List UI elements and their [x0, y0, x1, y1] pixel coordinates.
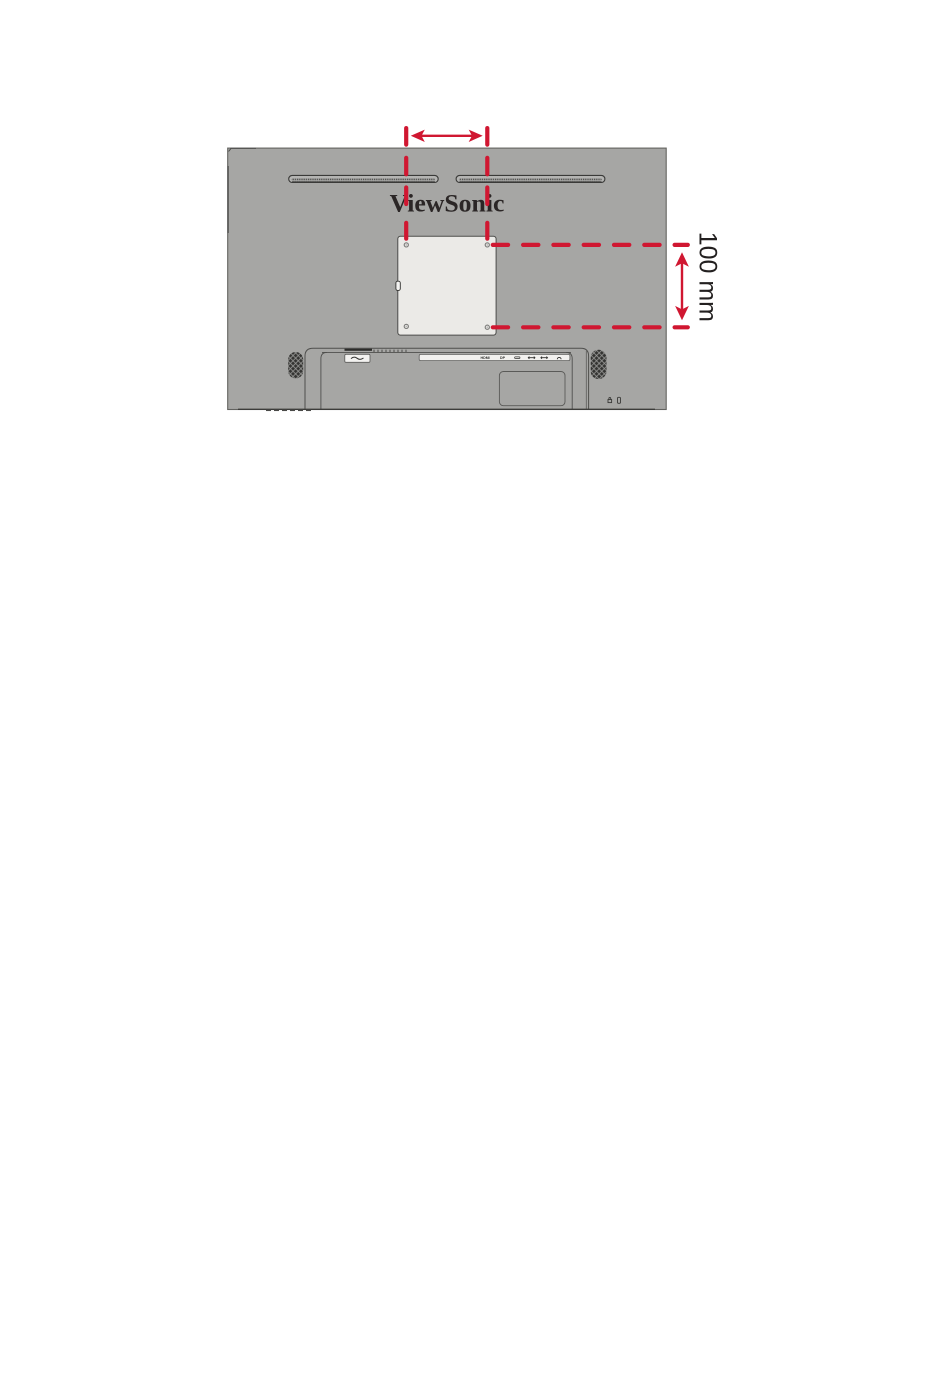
- svg-text:HDMI: HDMI: [481, 356, 490, 360]
- svg-text:100 mm: 100 mm: [693, 232, 721, 322]
- svg-text:DP: DP: [500, 356, 506, 360]
